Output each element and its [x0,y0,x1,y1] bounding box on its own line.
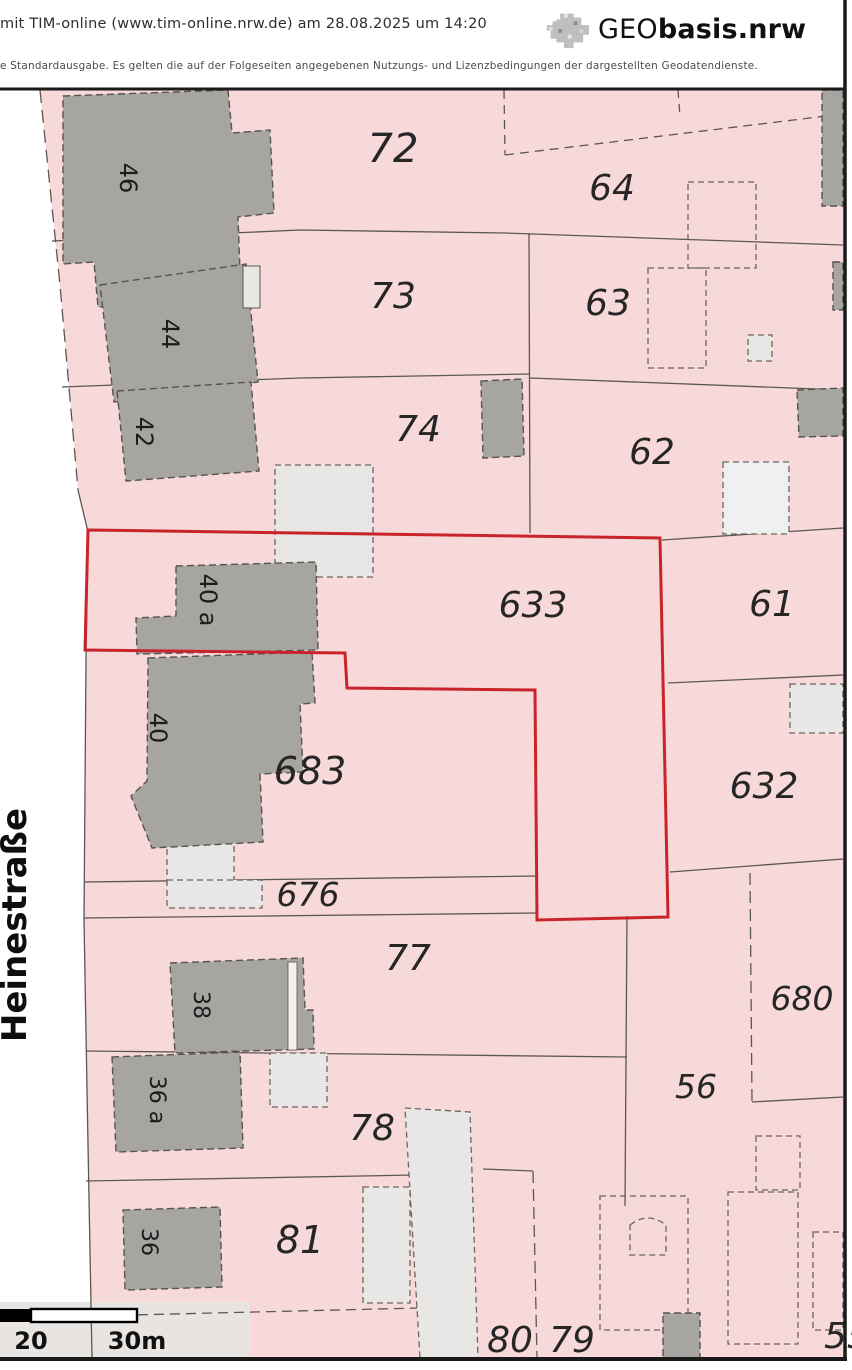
building-36a [112,1052,243,1152]
parcel-label-680: 680 [771,979,834,1018]
building-edge [797,388,843,437]
parcel-label-72: 72 [368,126,419,172]
house-number-40: 40 [144,713,172,744]
parcel-label-683: 683 [274,749,347,793]
parcel-label-56: 56 [675,1067,717,1106]
house-number-36: 36 [136,1228,161,1256]
building-edge [822,90,843,206]
outbuilding [167,880,262,908]
building-small [481,379,524,458]
house-number-40a: 40 a [194,574,222,627]
street-label-heinestrasse: Heinestraße [0,808,35,1042]
parcel-label-61: 61 [749,584,795,625]
parcel-label-78: 78 [349,1108,395,1149]
parcel-label-55-clipped: 55 [824,1316,852,1357]
outbuilding [270,1053,327,1107]
parcel-label-64: 64 [589,168,635,209]
house-number-36a: 36 a [144,1076,169,1124]
building-38-gap [288,962,297,1050]
building-small [663,1313,700,1358]
parcel-label-81: 81 [276,1218,324,1262]
outbuilding [363,1187,410,1303]
parcel-label-77: 77 [385,938,431,979]
parcel-label-63: 63 [585,283,631,324]
house-number-38: 38 [188,991,213,1019]
parcel-label-632: 632 [730,766,799,807]
house-number-42: 42 [130,417,158,448]
building-44-annex [243,266,260,308]
cadastral-map-canvas: 72 64 73 63 74 62 633 61 683 632 676 77 … [0,0,852,1370]
building-edge [833,262,843,310]
scale-label-20: 20 [14,1327,47,1355]
parcel-label-62: 62 [629,432,675,473]
parcel-label-633: 633 [499,585,568,626]
parcel-label-73: 73 [370,276,416,317]
tim-online-map-print-page: mit TIM-online (www.tim-online.nrw.de) a… [0,0,852,1370]
parcel-label-74: 74 [395,409,441,450]
outbuilding [748,335,772,361]
outbuilding [723,462,789,534]
outbuilding [275,465,373,577]
house-number-46: 46 [114,163,142,194]
outbuilding [790,684,843,733]
parcel-label-79: 79 [549,1320,595,1361]
parcel-label-80: 80 [487,1320,533,1361]
house-number-44: 44 [156,319,184,350]
parcel-label-676: 676 [277,875,340,914]
scale-label-30m: 30m [108,1327,166,1355]
